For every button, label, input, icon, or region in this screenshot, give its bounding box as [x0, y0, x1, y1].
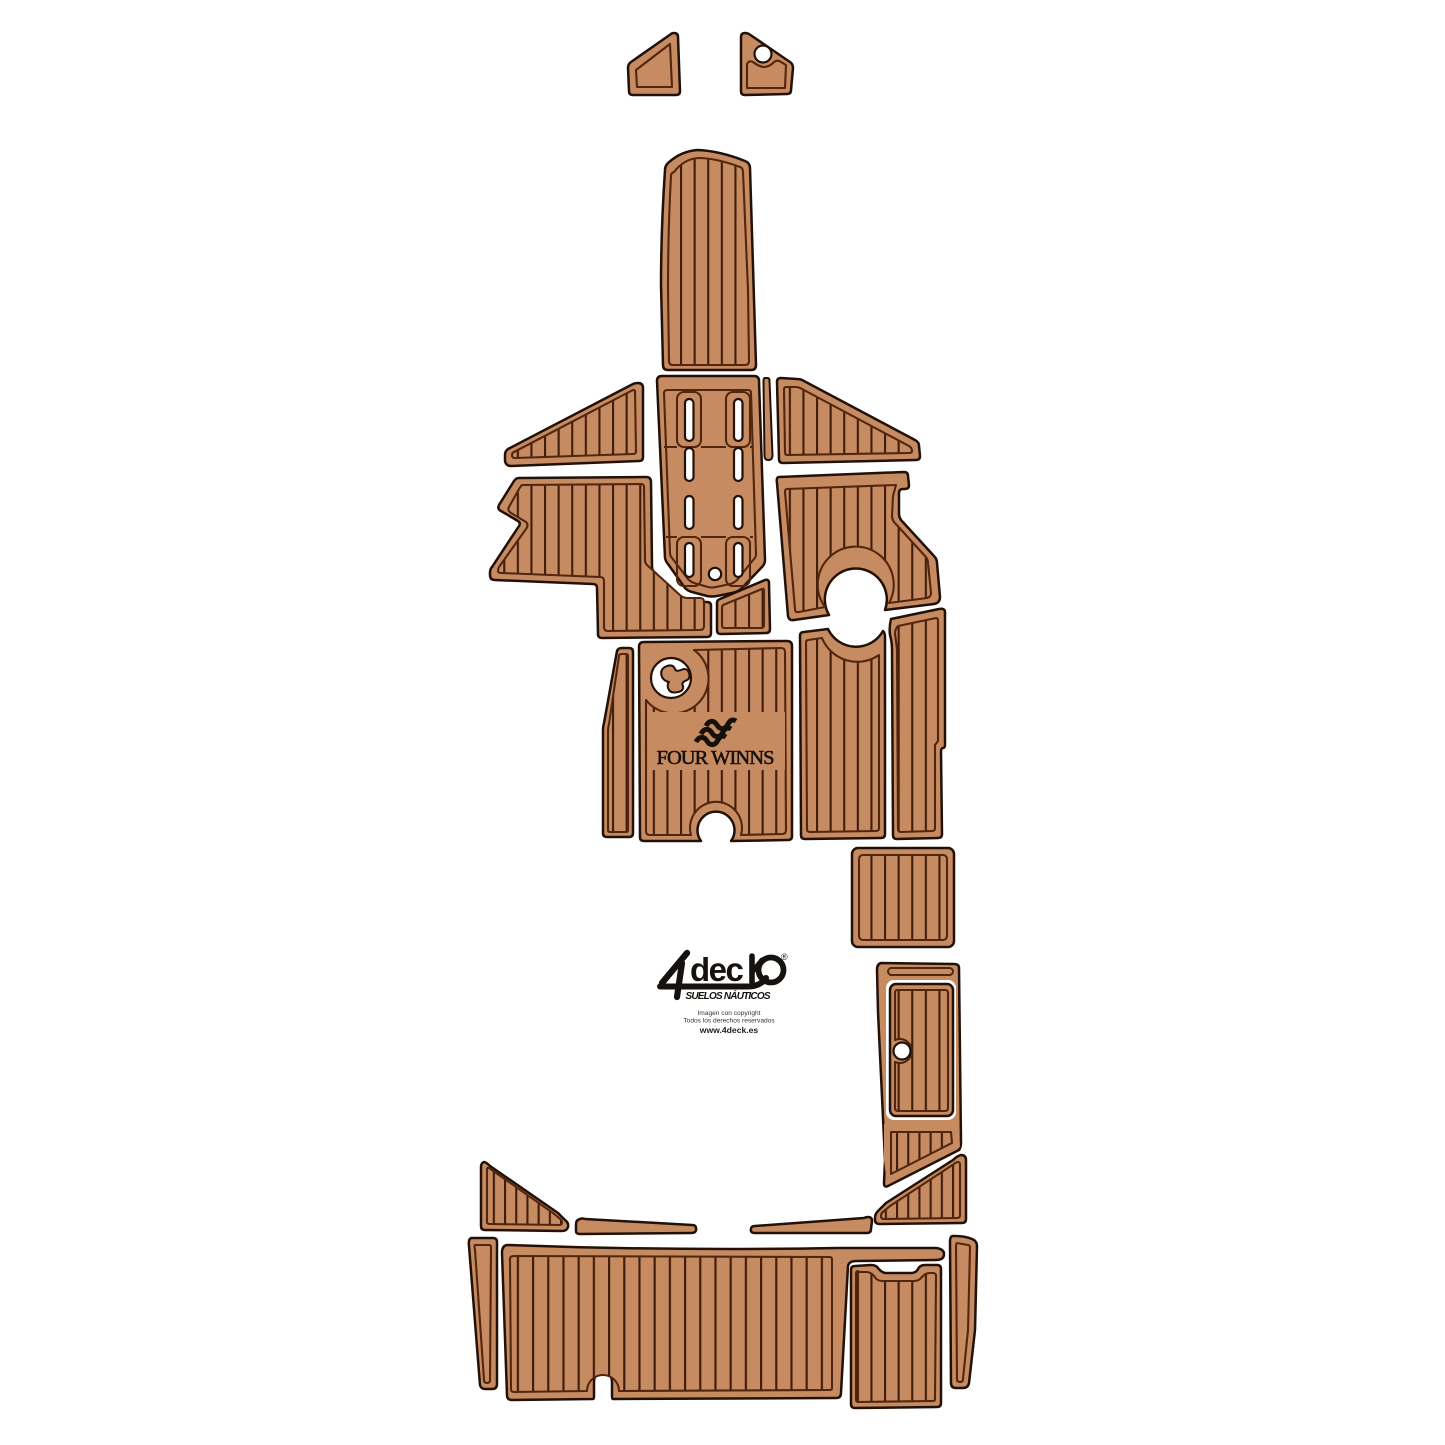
svg-text:FOUR WINNS: FOUR WINNS	[657, 747, 776, 769]
svg-text:®: ®	[781, 952, 788, 962]
svg-text:Imagen con copyright: Imagen con copyright	[697, 1010, 760, 1017]
svg-text:dec: dec	[690, 951, 744, 988]
svg-text:www.4deck.es: www.4deck.es	[699, 1025, 759, 1035]
svg-text:Todos los derechos reservados: Todos los derechos reservados	[683, 1018, 775, 1025]
svg-text:SUELOS NÁUTICOS: SUELOS NÁUTICOS	[686, 989, 773, 1002]
